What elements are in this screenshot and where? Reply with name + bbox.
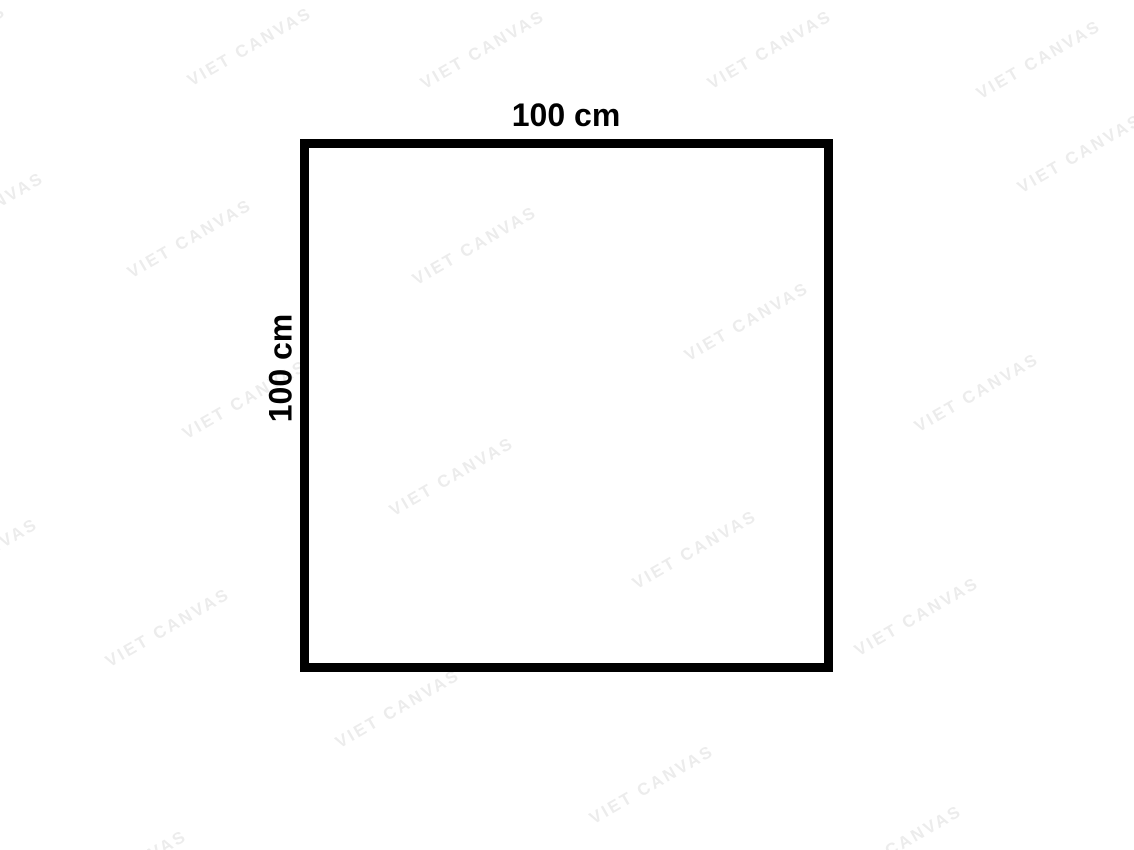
square-shape bbox=[300, 139, 833, 672]
watermark-text: VIET CANVAS bbox=[704, 6, 836, 94]
watermark-text: VIET CANVAS bbox=[851, 573, 983, 661]
watermark-text: VIET CANVAS bbox=[1014, 110, 1134, 198]
watermark-text: VIET CANVAS bbox=[332, 665, 464, 753]
watermark-text: VIET CANVAS bbox=[0, 168, 48, 256]
watermark-text: VIET CANVAS bbox=[834, 801, 966, 850]
watermark-text: VIET CANVAS bbox=[0, 1, 10, 89]
watermark-text: VIET CANVAS bbox=[124, 195, 256, 283]
watermark-text: VIET CANVAS bbox=[911, 349, 1043, 437]
top-dimension-label: 100 cm bbox=[512, 97, 621, 134]
watermark-text: VIET CANVAS bbox=[586, 741, 718, 829]
watermark-text: VIET CANVAS bbox=[417, 6, 549, 94]
watermark-text: VIET CANVAS bbox=[102, 584, 234, 672]
watermark-text: VIET CANVAS bbox=[0, 514, 42, 602]
watermark-text: VIET CANVAS bbox=[973, 16, 1105, 104]
watermark-text: VIET CANVAS bbox=[59, 826, 191, 850]
left-dimension-label: 100 cm bbox=[263, 314, 300, 423]
diagram-canvas: VIET CANVASVIET CANVASVIET CANVASVIET CA… bbox=[0, 0, 1134, 850]
watermark-text: VIET CANVAS bbox=[184, 3, 316, 91]
